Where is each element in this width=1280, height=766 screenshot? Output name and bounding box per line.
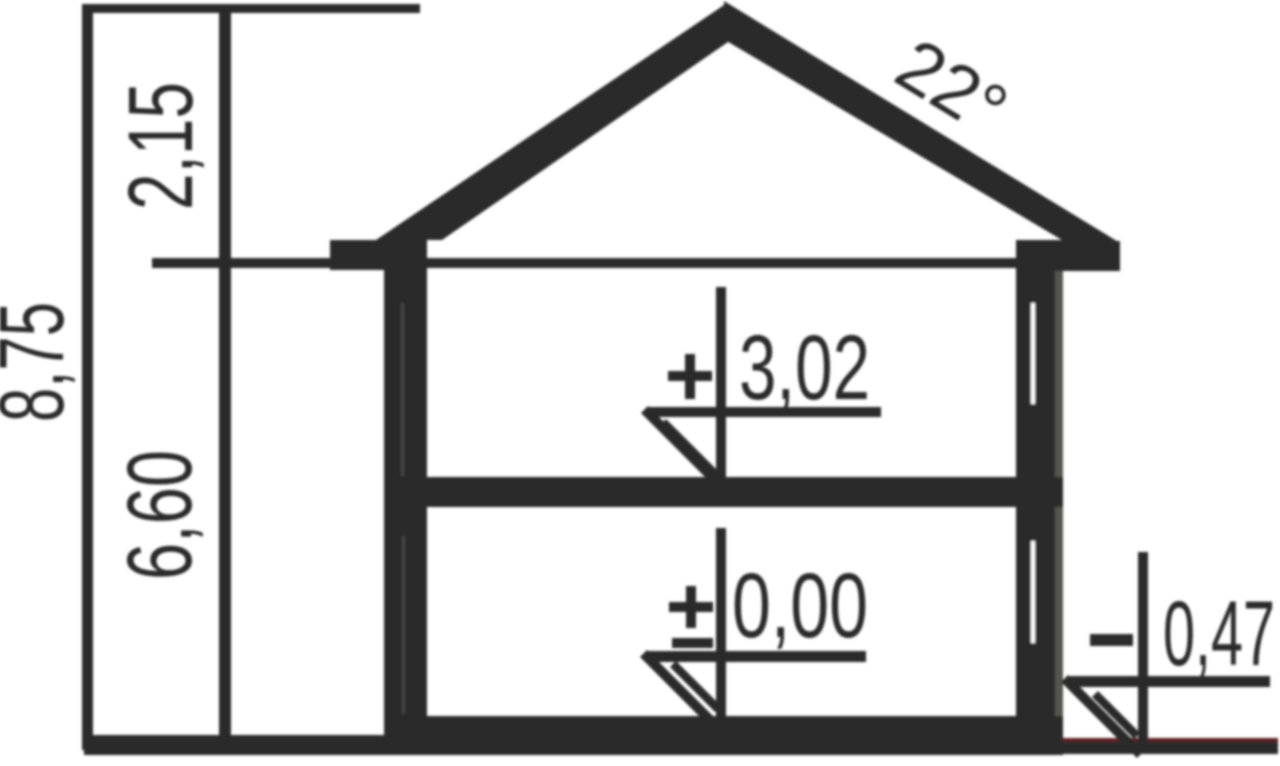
svg-text:3,02: 3,02 (739, 317, 870, 419)
svg-text:2,15: 2,15 (110, 82, 212, 210)
svg-text:8,75: 8,75 (0, 302, 83, 422)
svg-text:0,00: 0,00 (732, 555, 868, 657)
svg-text:0,47: 0,47 (1163, 583, 1275, 685)
svg-text:6,60: 6,60 (109, 450, 211, 580)
